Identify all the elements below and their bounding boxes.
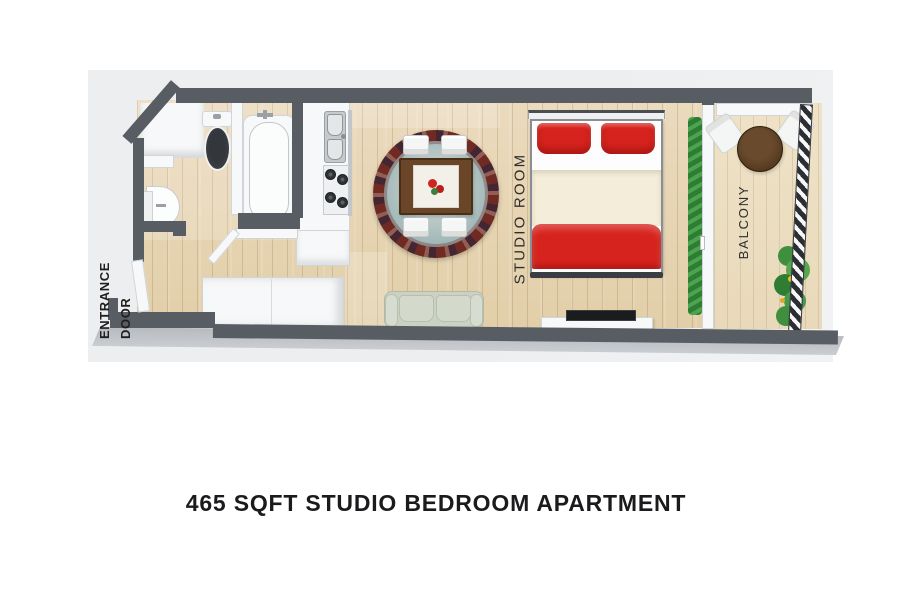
toilet-flush-button — [213, 114, 221, 119]
toilet-bowl — [204, 126, 231, 171]
sofa-armrest — [470, 294, 483, 327]
bed-pillow — [537, 123, 591, 154]
bed-headboard — [528, 110, 665, 119]
balcony-table — [737, 126, 783, 172]
wall-top — [176, 88, 812, 103]
bed-footboard — [530, 272, 663, 278]
bathtub-faucet-stem — [263, 110, 267, 119]
bathtub-basin — [249, 122, 289, 221]
dining-chair — [403, 217, 429, 237]
wall-tub-end — [238, 213, 300, 229]
bathroom-wall-face — [236, 228, 298, 239]
bed-pillow — [601, 123, 655, 154]
dining-chair — [441, 217, 467, 237]
toilet-tub-partition — [231, 100, 243, 215]
sofa-cushion — [399, 295, 434, 322]
window-planter-hedge — [688, 117, 702, 315]
flower-leaves — [431, 188, 438, 195]
wardrobe-seam — [271, 279, 272, 325]
wall-bath-kitchen-divider — [292, 100, 303, 218]
kitchen-faucet — [341, 134, 346, 139]
sofa-cushion — [436, 295, 471, 322]
bed-blanket-red — [532, 224, 661, 269]
kitchen-sink-basin — [327, 114, 343, 136]
floor-highlight-top — [350, 103, 500, 128]
kitchen-sink-basin — [327, 139, 343, 160]
stove-burner — [325, 192, 336, 203]
wall-balcony-pillar — [702, 88, 714, 105]
sink-faucet — [156, 204, 166, 207]
sofa-armrest — [385, 294, 398, 327]
dining-chair — [403, 135, 429, 155]
wall-inner-stub — [173, 221, 186, 236]
kitchen-counter-end — [296, 230, 350, 266]
studio-room-label: STUDIO ROOM — [512, 149, 529, 289]
balcony-label: BALCONY — [736, 180, 752, 264]
stove-burner — [337, 174, 348, 185]
floor-highlight-hall — [345, 252, 387, 326]
wall-left — [133, 138, 144, 262]
bathroom-shelf — [142, 155, 174, 168]
tv — [566, 310, 636, 321]
plan-caption: 465 SQFT STUDIO BEDROOM APARTMENT — [86, 490, 786, 520]
dining-chair — [441, 135, 467, 155]
sliding-door-handle — [700, 236, 705, 250]
entrance-door-label: ENTRANCE DOOR — [95, 251, 137, 339]
stove-burner — [325, 169, 336, 180]
plant-flower — [780, 298, 785, 303]
stove-burner — [337, 197, 348, 208]
wardrobe — [202, 277, 344, 327]
bed-blanket-cream — [532, 170, 661, 226]
